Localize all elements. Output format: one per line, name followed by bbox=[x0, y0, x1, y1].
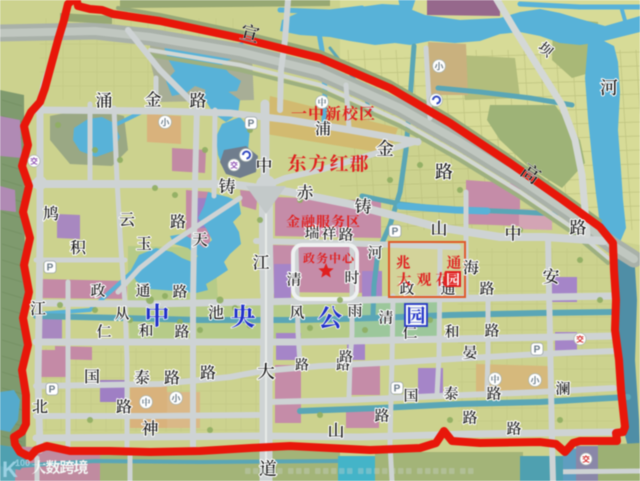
svg-text:P: P bbox=[248, 119, 255, 130]
svg-text:P: P bbox=[394, 384, 401, 395]
svg-text:100: 100 bbox=[15, 458, 30, 468]
svg-text:P: P bbox=[392, 227, 399, 238]
svg-text:P: P bbox=[47, 263, 54, 274]
svg-text:P: P bbox=[49, 385, 56, 396]
svg-text:P: P bbox=[534, 345, 541, 356]
